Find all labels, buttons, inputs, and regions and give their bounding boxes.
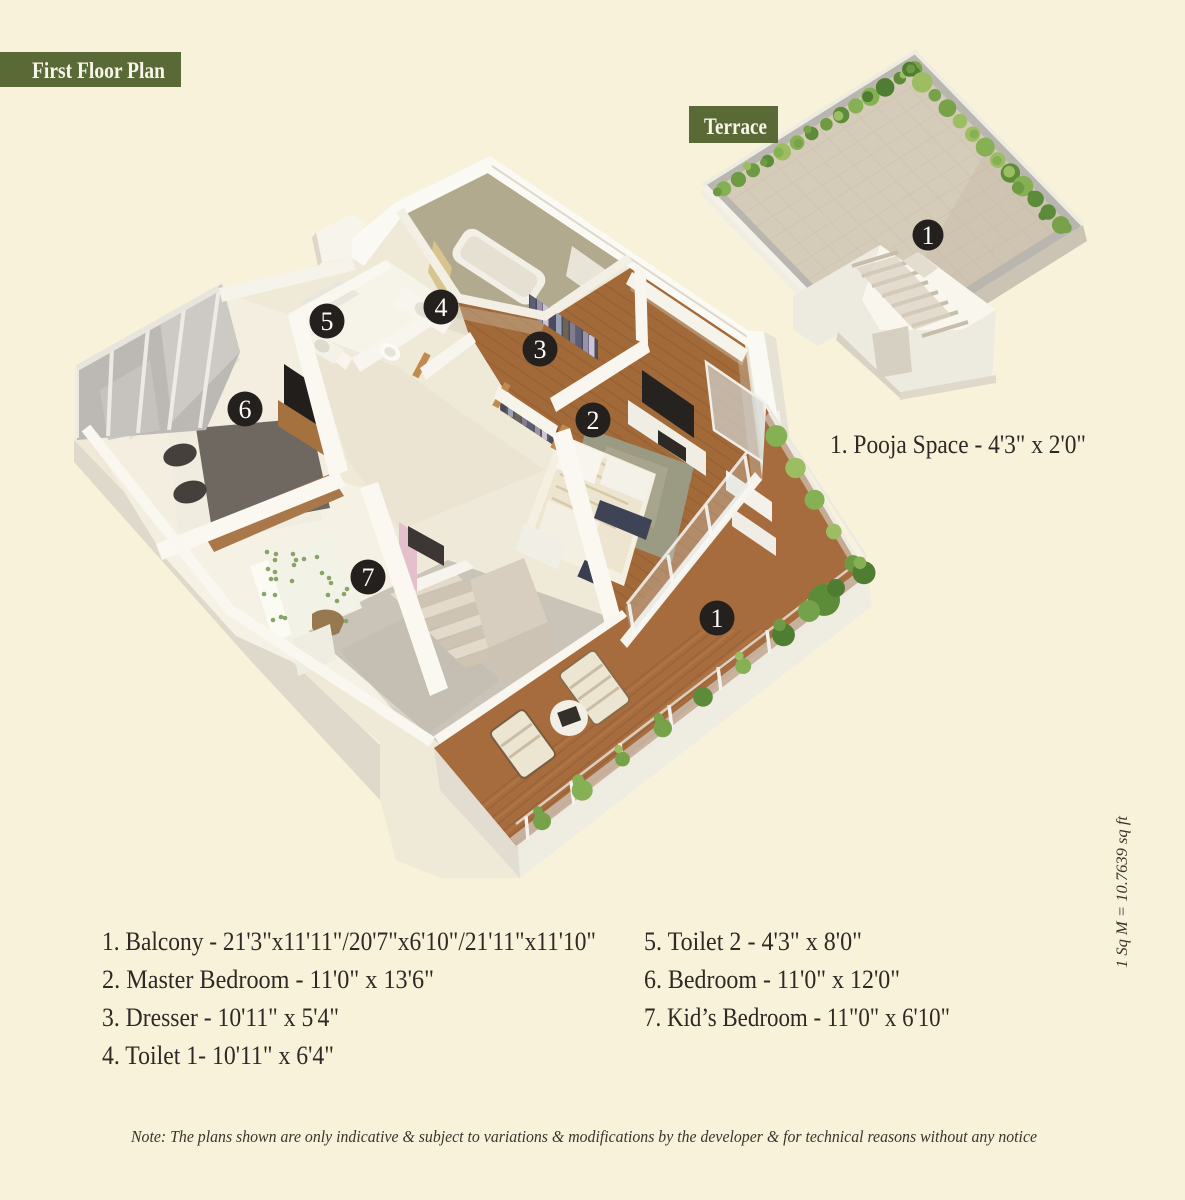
svg-text:1: 1 bbox=[922, 221, 935, 250]
svg-text:Terrace: Terrace bbox=[704, 114, 767, 139]
svg-text:7. Kid’s Bedroom - 11"0" x 6'1: 7. Kid’s Bedroom - 11"0" x 6'10" bbox=[644, 1003, 950, 1032]
svg-text:Note: The plans shown are only: Note: The plans shown are only indicativ… bbox=[130, 1127, 1037, 1146]
svg-text:2: 2 bbox=[587, 406, 600, 435]
svg-text:4: 4 bbox=[435, 293, 448, 322]
svg-text:First Floor Plan: First Floor Plan bbox=[32, 58, 165, 83]
svg-text:6. Bedroom - 11'0" x 12'0": 6. Bedroom - 11'0" x 12'0" bbox=[644, 965, 900, 994]
svg-text:2. Master Bedroom - 11'0" x 13: 2. Master Bedroom - 11'0" x 13'6" bbox=[102, 965, 434, 994]
svg-text:1: 1 bbox=[711, 604, 724, 633]
svg-text:5: 5 bbox=[321, 307, 334, 336]
svg-text:3. Dresser - 10'11" x 5'4": 3. Dresser - 10'11" x 5'4" bbox=[102, 1003, 339, 1032]
svg-text:3: 3 bbox=[534, 335, 547, 364]
svg-text:5. Toilet 2 - 4'3" x 8'0": 5. Toilet 2 - 4'3" x 8'0" bbox=[644, 927, 862, 956]
svg-text:4. Toilet 1- 10'11" x 6'4": 4. Toilet 1- 10'11" x 6'4" bbox=[102, 1041, 334, 1070]
svg-text:6: 6 bbox=[239, 395, 252, 424]
svg-text:1 Sq M = 10.7639 sq ft: 1 Sq M = 10.7639 sq ft bbox=[1114, 815, 1131, 968]
svg-text:1. Balcony - 21'3"x11'11"/20'7: 1. Balcony - 21'3"x11'11"/20'7"x6'10"/21… bbox=[102, 927, 596, 956]
svg-text:7: 7 bbox=[362, 563, 375, 592]
svg-text:1. Pooja Space - 4'3" x 2'0": 1. Pooja Space - 4'3" x 2'0" bbox=[830, 430, 1086, 459]
